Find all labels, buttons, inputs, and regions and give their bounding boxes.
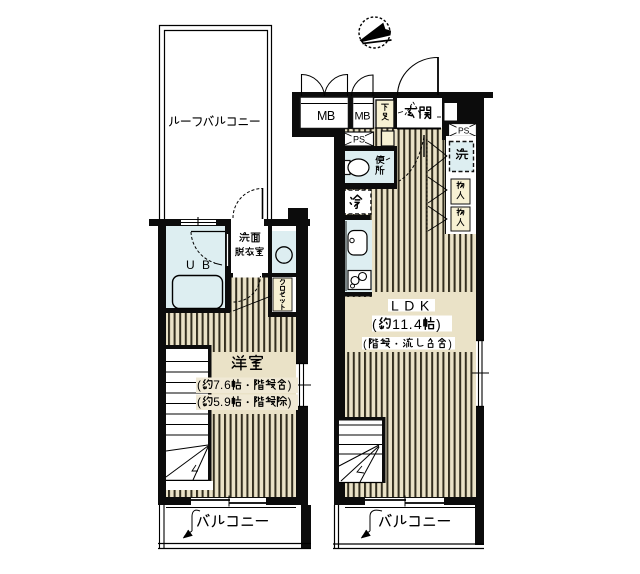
svg-text:9: 9 (224, 395, 231, 409)
svg-text:4: 4 (414, 316, 422, 332)
svg-text:MB: MB (355, 111, 371, 123)
svg-text:): ) (448, 339, 452, 351)
svg-text:PS: PS (458, 126, 470, 136)
svg-text:): ) (288, 379, 292, 392)
svg-text:(: ( (197, 396, 201, 409)
svg-text:.: . (220, 396, 223, 409)
svg-text:LDK: LDK (391, 298, 435, 314)
svg-text:B: B (202, 258, 210, 272)
svg-text:(: ( (197, 379, 201, 392)
svg-text:6: 6 (224, 378, 231, 392)
svg-text:1: 1 (400, 316, 408, 332)
svg-text:.: . (220, 379, 223, 392)
svg-text:1: 1 (392, 316, 400, 332)
svg-text:U: U (186, 258, 195, 272)
svg-text:MB: MB (317, 109, 335, 123)
svg-text:.: . (409, 317, 413, 332)
svg-text:): ) (436, 317, 441, 332)
svg-text:PS: PS (353, 135, 365, 145)
svg-text:(: ( (363, 339, 367, 351)
svg-text:): ) (288, 396, 292, 409)
svg-text:(: ( (372, 317, 377, 332)
